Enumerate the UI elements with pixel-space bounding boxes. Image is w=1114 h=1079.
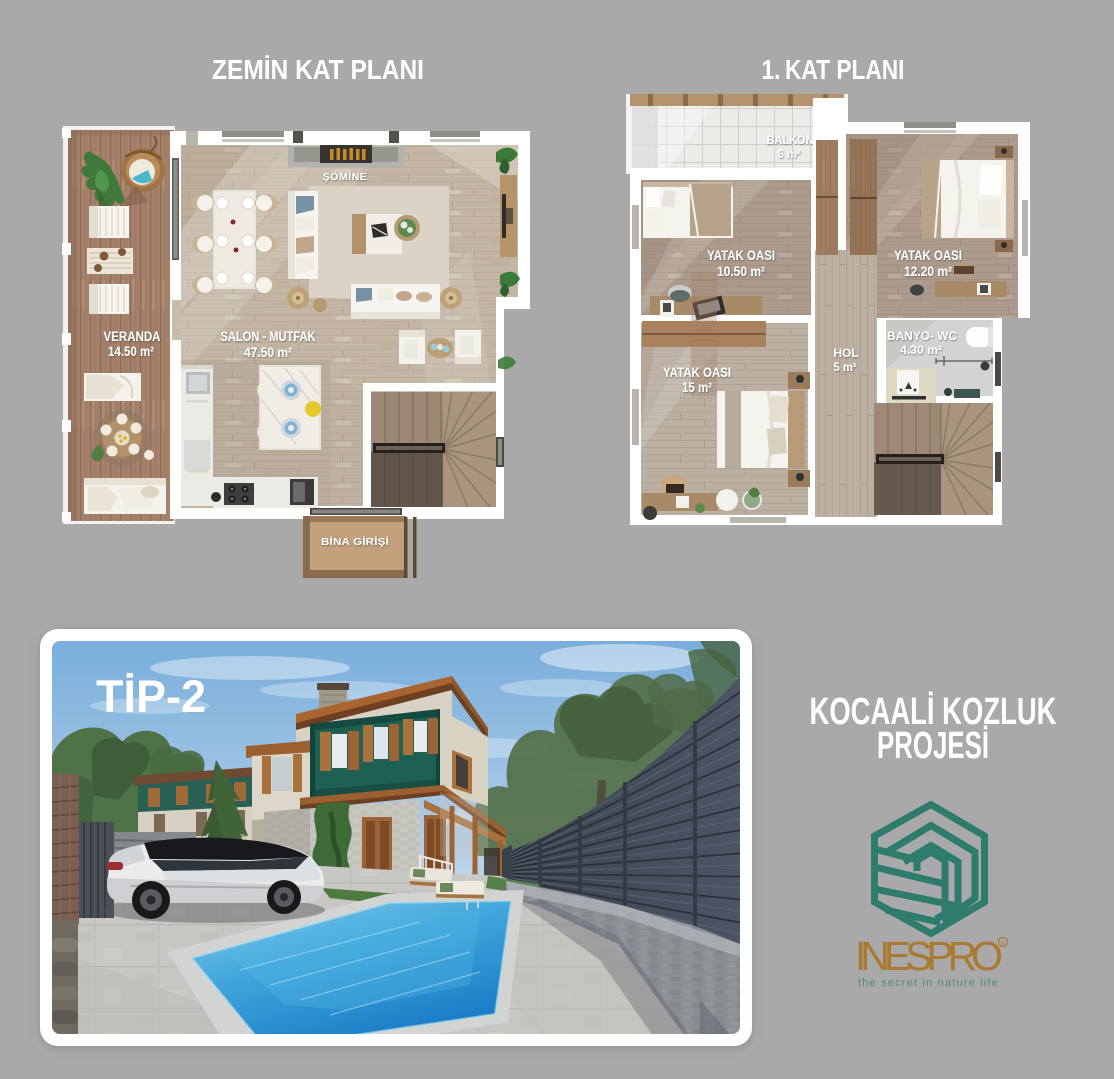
svg-text:the secret in nature life: the secret in nature life [858, 977, 1000, 989]
svg-text:R: R [1001, 941, 1006, 948]
svg-text:TİP-2: TİP-2 [96, 671, 206, 722]
svg-text:VERANDA: VERANDA [104, 329, 161, 344]
svg-text:1. KAT PLANI: 1. KAT PLANI [762, 54, 905, 85]
svg-text:YATAK OASI: YATAK OASI [663, 365, 731, 380]
svg-text:YATAK OASI: YATAK OASI [707, 248, 775, 263]
svg-text:15 m²: 15 m² [682, 380, 712, 395]
svg-text:SALON - MUTFAK: SALON - MUTFAK [221, 329, 316, 344]
svg-text:ZEMİN KAT PLANI: ZEMİN KAT PLANI [212, 54, 424, 85]
svg-text:YATAK OASI: YATAK OASI [894, 248, 962, 263]
svg-text:BİNA GİRİŞİ: BİNA GİRİŞİ [321, 535, 389, 548]
svg-text:BANYO- WC: BANYO- WC [887, 329, 957, 343]
svg-text:HOL: HOL [834, 346, 859, 360]
svg-text:47.50 m²: 47.50 m² [244, 345, 292, 360]
svg-text:4.30 m²: 4.30 m² [900, 343, 942, 357]
svg-text:5 m²: 5 m² [834, 360, 857, 374]
svg-text:INESPRO: INESPRO [855, 933, 1003, 979]
svg-text:12.20 m²: 12.20 m² [904, 264, 952, 279]
svg-text:PROJESİ: PROJESİ [877, 725, 989, 767]
svg-text:14.50 m²: 14.50 m² [108, 344, 154, 359]
svg-text:ŞÖMİNE: ŞÖMİNE [323, 170, 367, 183]
svg-text:BALKON: BALKON [767, 133, 814, 147]
svg-text:10.50 m²: 10.50 m² [717, 264, 765, 279]
svg-text:6 m²: 6 m² [778, 147, 801, 161]
